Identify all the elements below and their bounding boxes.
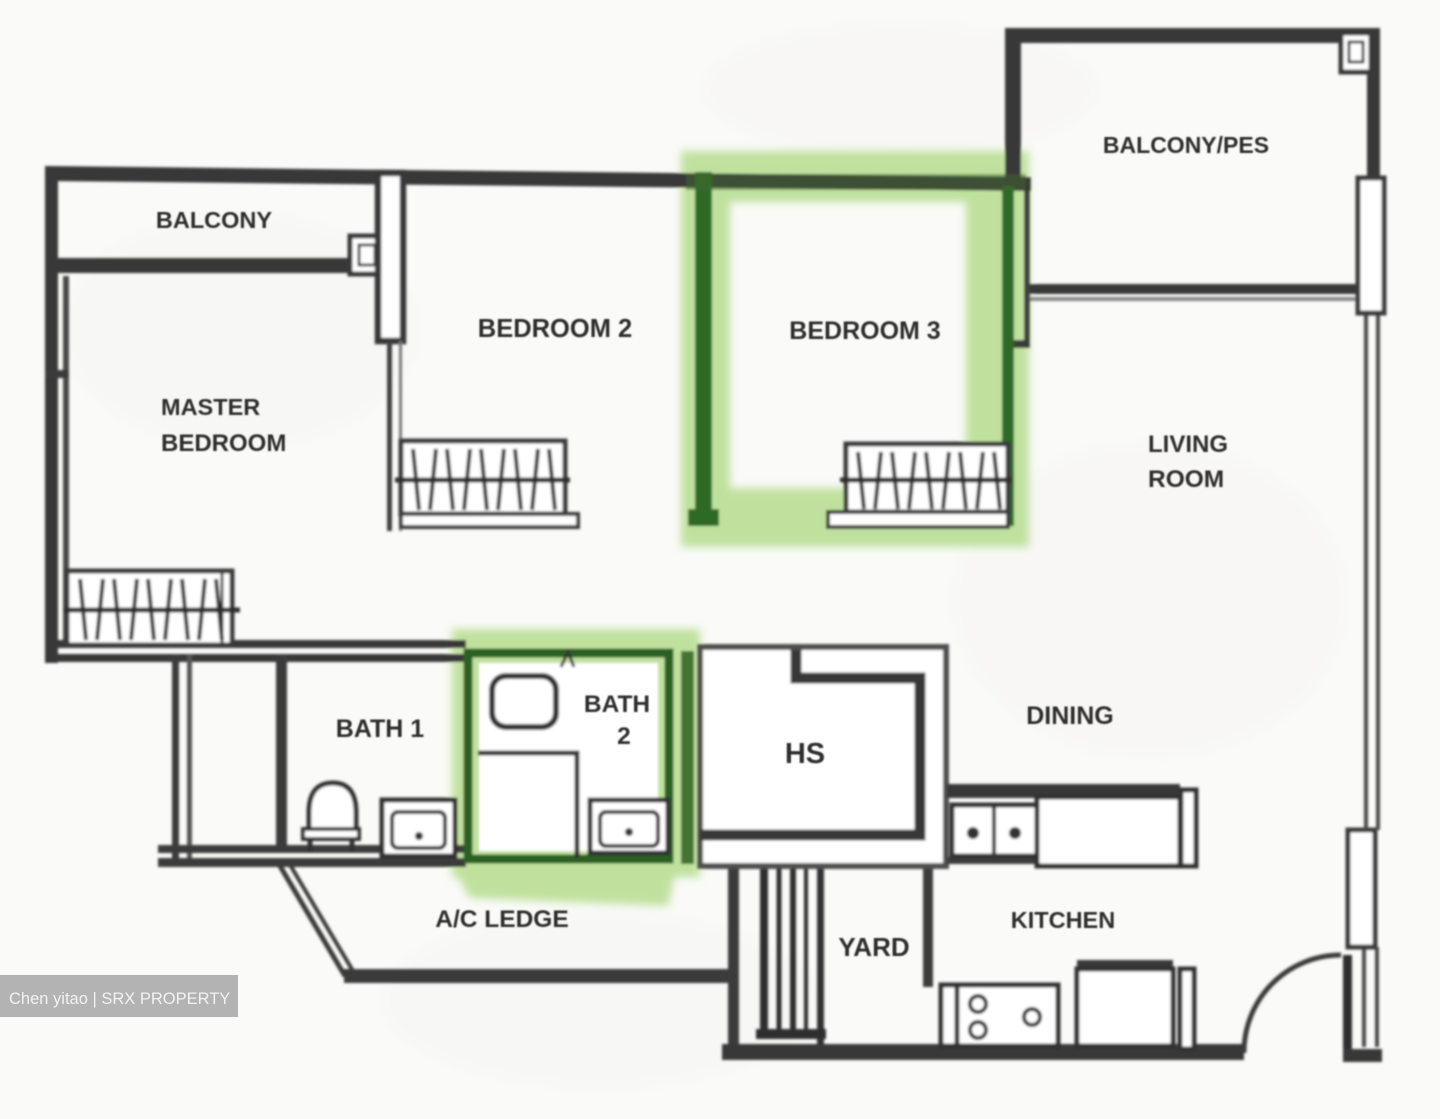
svg-text:BEDROOM 3: BEDROOM 3 [789, 317, 940, 345]
svg-text:YARD: YARD [838, 932, 909, 962]
svg-text:ROOM: ROOM [1148, 466, 1224, 493]
svg-text:KITCHEN: KITCHEN [1011, 907, 1115, 933]
svg-text:BEDROOM: BEDROOM [161, 430, 286, 457]
svg-text:BALCONY/PES: BALCONY/PES [1103, 132, 1269, 158]
svg-text:A/C LEDGE: A/C LEDGE [435, 906, 568, 933]
svg-text:BEDROOM 2: BEDROOM 2 [478, 315, 632, 343]
svg-text:BATH: BATH [584, 691, 650, 718]
svg-text:BALCONY: BALCONY [156, 207, 273, 233]
svg-text:DINING: DINING [1026, 702, 1114, 730]
svg-text:LIVING: LIVING [1148, 431, 1228, 458]
svg-text:MASTER: MASTER [161, 394, 260, 420]
svg-text:HS: HS [785, 738, 825, 770]
svg-text:2: 2 [617, 723, 631, 750]
svg-text:BATH 1: BATH 1 [336, 715, 425, 743]
svg-text:Chen yitao | SRX PROPERTY: Chen yitao | SRX PROPERTY [9, 990, 230, 1008]
